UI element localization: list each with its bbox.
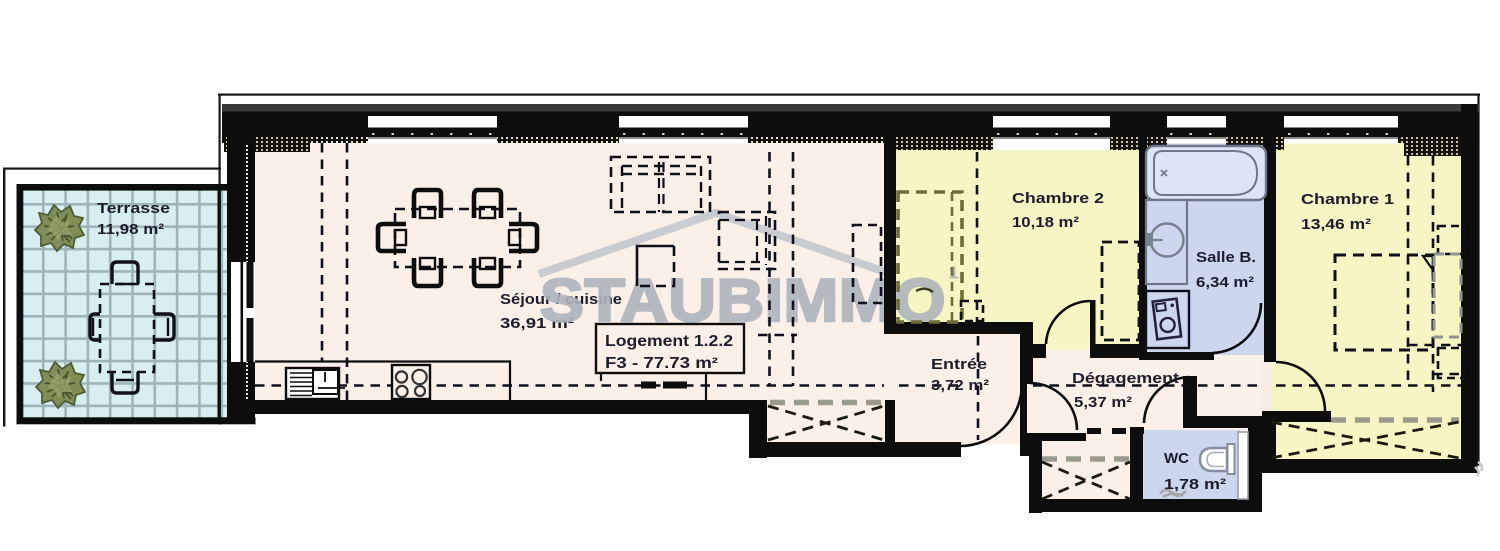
svg-text:Chambre 1: Chambre 1: [1301, 191, 1394, 208]
svg-text:Dégagement: Dégagement: [1072, 370, 1179, 387]
svg-text:11,98 m²: 11,98 m²: [97, 221, 164, 238]
svg-text:Salle B.: Salle B.: [1196, 249, 1256, 266]
svg-text:5,37 m²: 5,37 m²: [1074, 394, 1132, 411]
svg-text:Chambre 2: Chambre 2: [1012, 190, 1104, 207]
svg-text:10,18 m²: 10,18 m²: [1012, 214, 1079, 231]
svg-text:1,78 m²: 1,78 m²: [1164, 476, 1226, 493]
svg-text:13,46 m²: 13,46 m²: [1301, 216, 1371, 233]
svg-text:¹: ¹: [948, 260, 959, 298]
svg-text:WC: WC: [1164, 450, 1189, 467]
svg-text:F3 - 77.73 m²: F3 - 77.73 m²: [605, 355, 718, 372]
svg-text:Terrasse: Terrasse: [97, 200, 170, 217]
svg-text:Logement 1.2.2: Logement 1.2.2: [605, 333, 733, 350]
svg-text:6,34 m²: 6,34 m²: [1196, 274, 1254, 291]
svg-text:Entrée: Entrée: [931, 356, 987, 373]
svg-text:3,72 m²: 3,72 m²: [931, 377, 989, 394]
